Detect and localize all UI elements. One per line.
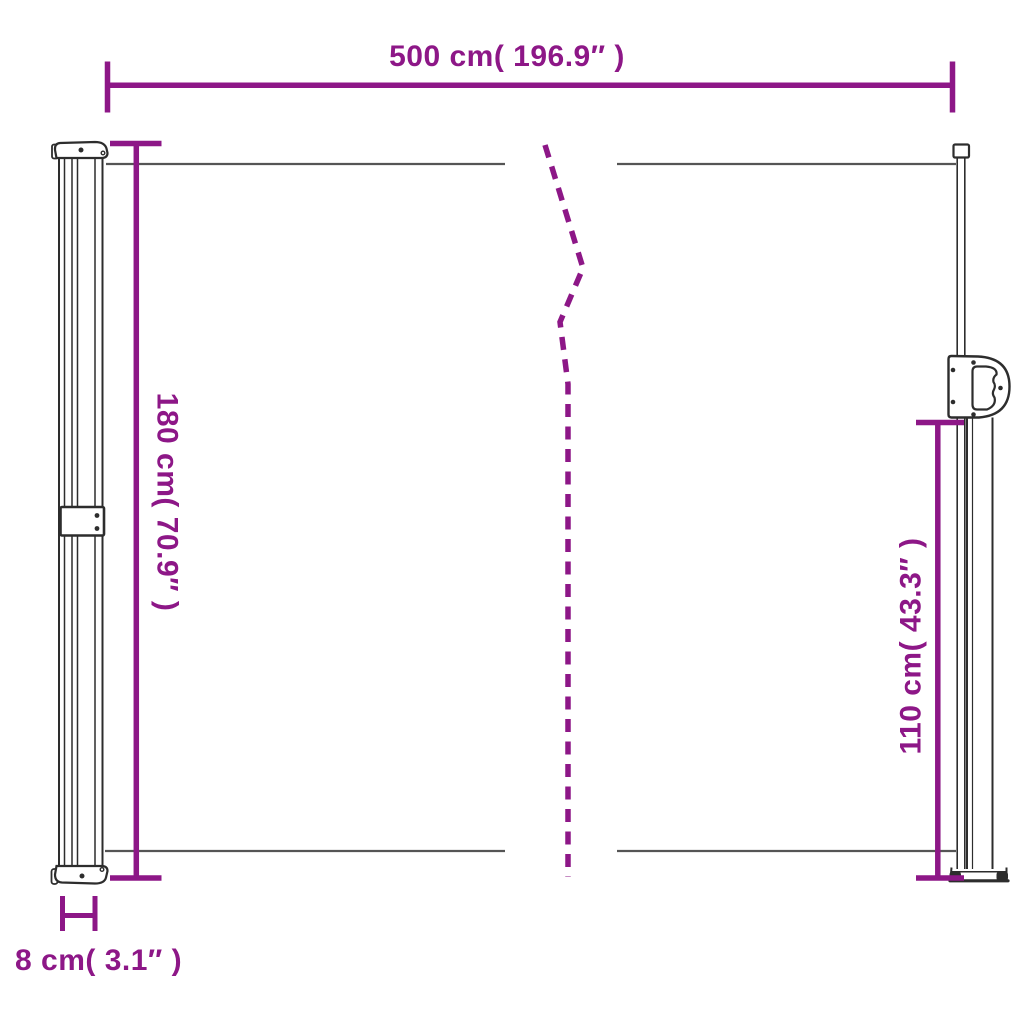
- screw-dot: [971, 360, 976, 365]
- fabric-break-dashed-line: [545, 145, 583, 877]
- screw-dot: [79, 148, 84, 153]
- screw-dot: [951, 368, 956, 373]
- screw-dot: [971, 412, 976, 417]
- product-dimension-diagram: 500 cm( 196.9″ ) 180 cm( 70.9″ ) 110 cm(…: [0, 0, 1024, 1024]
- wall-bracket: [61, 507, 105, 536]
- height-left-dimension-label: 180 cm( 70.9″ ): [151, 393, 184, 612]
- depth-dimension-label: 8 cm( 3.1″ ): [15, 944, 182, 977]
- screw-dot: [998, 386, 1003, 391]
- screw-dot: [95, 513, 100, 518]
- width-dimension-label: 500 cm( 196.9″ ): [389, 40, 625, 73]
- cassette-top-cap: [52, 142, 108, 159]
- right-pole-lower-tube: [967, 418, 993, 870]
- screw-dot: [951, 400, 956, 405]
- handle-grip-cutout: [973, 367, 997, 410]
- depth-dimension: [63, 896, 96, 931]
- screw-dot: [80, 874, 85, 879]
- pole-handle: [949, 356, 1010, 418]
- height-right-dimension-label: 110 cm( 43.3″ ): [895, 537, 928, 754]
- cassette-bottom-cap: [52, 866, 108, 884]
- pole-top-cap: [954, 145, 970, 158]
- right-pole-upper: [957, 158, 965, 870]
- screw-dot: [95, 526, 100, 531]
